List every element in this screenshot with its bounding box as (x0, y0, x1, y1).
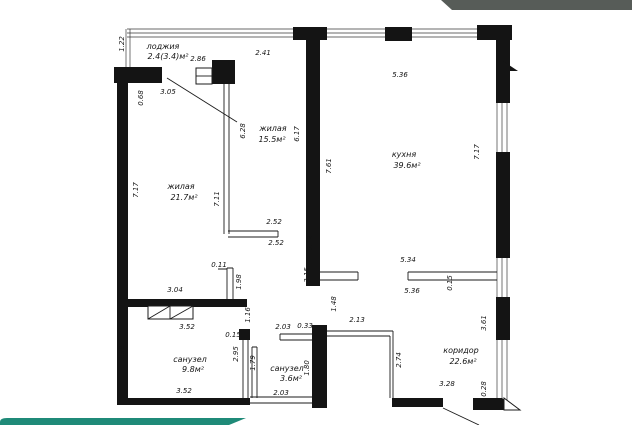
dimension-label: 2.74 (395, 352, 403, 368)
dimension-label: 5.34 (400, 256, 416, 264)
dimension-label: 7.11 (213, 191, 221, 207)
dimension-label: 3.28 (439, 380, 455, 388)
dimension-label: 3.04 (167, 286, 183, 294)
dimension-label: 2.52 (266, 218, 282, 226)
dimension-label: 3.52 (176, 387, 192, 395)
dimension-label: 1.80 (303, 360, 311, 376)
room-area-label: 39.6м² (393, 161, 421, 170)
dimension-label: 3.15 (303, 267, 311, 283)
floor-plan-svg: лоджия2.4(3.4)м²жилая15.5м²жилая21.7м²ку… (0, 0, 632, 425)
dimension-label: 2.13 (349, 316, 365, 324)
floor-plan-page: лоджия2.4(3.4)м²жилая15.5м²жилая21.7м²ку… (0, 0, 632, 425)
dimension-label: 2.95 (232, 346, 240, 362)
dimension-label: 1.22 (118, 36, 126, 52)
dimension-label: 1.79 (249, 355, 257, 371)
dimension-label: 0.11 (211, 261, 227, 269)
dimension-label: 2.03 (273, 389, 289, 397)
dimension-label: 2.41 (255, 49, 271, 57)
dimension-label: 1.48 (330, 296, 338, 312)
door-swing-mark (503, 61, 518, 71)
dimension-label: 7.61 (325, 158, 333, 174)
room-area-label: 22.6м² (449, 357, 477, 366)
dimension-label: 2.52 (268, 239, 284, 247)
room-area-label: 2.4(3.4)м² (148, 52, 190, 61)
top-right-decor-band (441, 0, 632, 10)
dimension-label: 5.36 (404, 287, 420, 295)
entry-threshold-mark (504, 398, 520, 410)
room-area-label: 3.6м² (280, 374, 303, 383)
dimension-label: 0.33 (297, 322, 313, 330)
dimension-label: 1.16 (244, 307, 252, 323)
dimension-label: 0.28 (480, 381, 488, 397)
dimension-label: 7.17 (132, 182, 140, 198)
room-area-label: 15.5м² (258, 135, 286, 144)
dimension-label: 0.15 (225, 331, 241, 339)
dimension-label: 7.17 (473, 144, 481, 160)
dimension-label: 0.15 (446, 275, 454, 291)
room-name-label: коридор (443, 346, 479, 355)
room-area-label: 9.8м² (182, 365, 205, 374)
dimension-label: 3.05 (160, 88, 176, 96)
room-name-label: санузел (173, 355, 207, 364)
dimension-label: 0.68 (137, 90, 145, 106)
room-name-label: жилая (258, 124, 286, 133)
dimension-label: 2.03 (275, 323, 291, 331)
dimension-label: 2.86 (190, 55, 206, 63)
bottom-left-accent-band (0, 418, 246, 425)
dimension-label: 2.98 (118, 345, 126, 361)
room-name-label: санузел (270, 364, 304, 373)
dimension-label: 3.61 (480, 315, 488, 331)
dimension-label: 5.36 (392, 71, 408, 79)
dimension-label: 3.52 (179, 323, 195, 331)
leader-line (167, 78, 237, 122)
partition-walls (167, 78, 497, 425)
dimension-label: 6.28 (239, 123, 247, 139)
room-area-label: 21.7м² (170, 193, 198, 202)
dimension-label: 6.17 (293, 126, 301, 142)
room-name-label: лоджия (146, 42, 180, 51)
entrance-leader-line (443, 408, 479, 425)
dimension-label: 1.98 (235, 274, 243, 290)
dimension-label: 0.12 (306, 235, 314, 251)
room-name-label: кухня (392, 150, 417, 159)
plan-labels: лоджия2.4(3.4)м²жилая15.5м²жилая21.7м²ку… (118, 36, 488, 397)
room-name-label: жилая (166, 182, 194, 191)
